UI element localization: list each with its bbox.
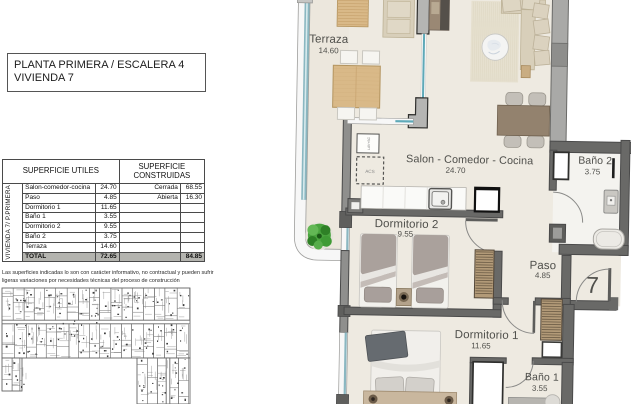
svg-text:Baño 1: Baño 1: [525, 371, 559, 384]
svg-text:4.85: 4.85: [535, 271, 551, 280]
svg-text:24.70: 24.70: [445, 166, 466, 175]
svg-text:Baño 2: Baño 2: [578, 155, 612, 168]
svg-text:3.55: 3.55: [532, 384, 548, 393]
svg-text:Terraza: Terraza: [309, 33, 349, 46]
svg-text:7: 7: [586, 272, 599, 298]
svg-text:LAV+SC: LAV+SC: [367, 136, 371, 149]
svg-text:ACS: ACS: [365, 169, 375, 174]
svg-text:9.55: 9.55: [398, 229, 414, 238]
svg-text:14.60: 14.60: [318, 46, 339, 55]
svg-text:3.75: 3.75: [585, 167, 601, 176]
svg-text:Salon - Comedor - Cocina: Salon - Comedor - Cocina: [406, 153, 533, 167]
svg-text:11.65: 11.65: [471, 341, 491, 350]
svg-text:Dormitorio 1: Dormitorio 1: [455, 329, 519, 342]
